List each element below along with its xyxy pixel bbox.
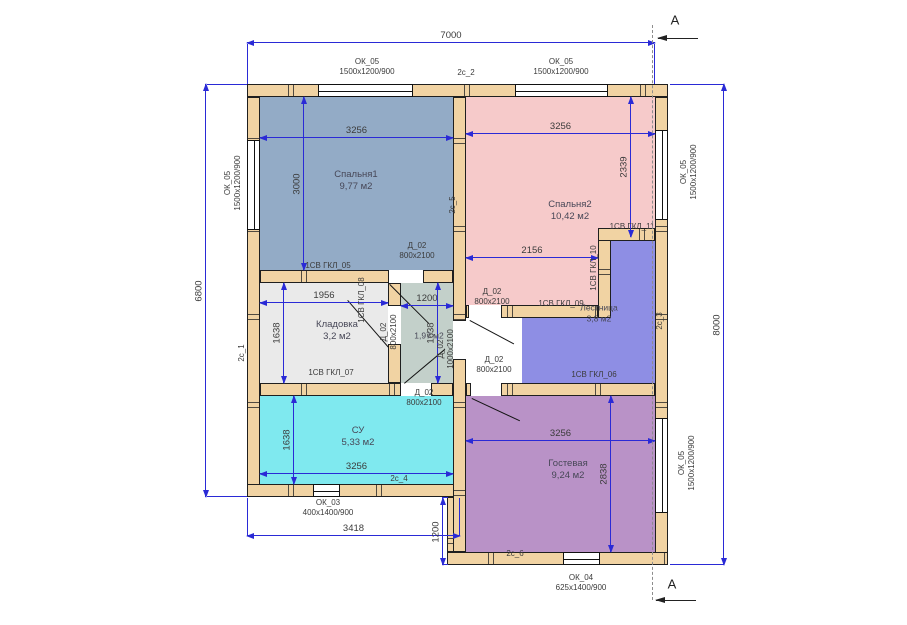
axis-tag-2c2: 2с_2 (457, 68, 474, 78)
dimension-living-width: 3256 (466, 440, 655, 441)
dimension-bottom-left: 3418 (247, 535, 460, 536)
door-label-storage: Д_02 800х2100 (379, 314, 399, 349)
dimension-bedroom2-width-lower: 2156 (466, 257, 598, 258)
dimension-left: 6800 (205, 84, 206, 497)
window-ok05-right-upper (655, 130, 668, 220)
window-ok05-top-left (318, 84, 413, 97)
dimension-bathroom-width: 3256 (260, 473, 453, 474)
wall-bottom-right (447, 552, 668, 565)
window-label-ok05-right-lower: ОК_05 1500х1200/900 (677, 435, 697, 490)
window-label-ok05-right-upper: ОК_05 1500х1200/900 (679, 144, 699, 199)
extension-line (207, 84, 247, 85)
section-arrow-top (658, 38, 698, 39)
dimension-bathroom-height: 1638 (293, 396, 294, 484)
wall-tag-09: 1СВ ГКЛ_09 (538, 299, 583, 309)
window-ok05-top-right (515, 84, 608, 97)
window-label-ok04: ОК_04 625х1400/900 (556, 573, 607, 593)
room-label-bedroom1: Спальня1 9,77 м2 (334, 169, 377, 193)
door-label-living: Д_02 800х2100 (476, 355, 511, 375)
wall-tag-10: 1СВ ГКЛ_10 (589, 245, 599, 290)
wall-tag-07: 1СВ ГКЛ_07 (308, 368, 353, 378)
door-label-hall-entry: Д_02 1000х2100 (436, 329, 456, 369)
wall-bottom-left (247, 484, 460, 497)
dimension-bedroom2-height: 2339 (630, 97, 631, 237)
wall-tag-08: 1СВ ГКЛ_08 (357, 277, 367, 322)
section-mark-top: А (671, 13, 680, 28)
room-label-bathroom: СУ 5,33 м2 (342, 425, 375, 449)
window-ok05-right-lower (655, 418, 668, 513)
room-label-living: Гостевая 9,24 м2 (548, 458, 587, 482)
door-label-bathroom: Д_02 800х2100 (406, 388, 441, 408)
dimension-right: 8000 (723, 84, 724, 565)
axis-tag-2c5: 2с_5 (448, 196, 458, 213)
window-ok03-bottom (313, 484, 340, 497)
room-label-storage: Кладовка 3,2 м2 (316, 319, 358, 343)
dimension-bedroom1-height: 3000 (303, 97, 304, 270)
axis-tag-2c3: 2с_3 (655, 312, 665, 329)
window-label-ok05-top-right: ОК_05 1500х1200/900 (533, 57, 588, 77)
door-label-bedroom2: Д_02 800х2100 (474, 287, 509, 307)
extension-line (247, 498, 248, 535)
section-cut-line (652, 25, 653, 600)
axis-tag-2c4: 2с_4 (390, 474, 407, 484)
section-mark-bottom: А (668, 577, 677, 592)
extension-line (670, 564, 723, 565)
extension-line (654, 44, 655, 84)
window-label-ok05-top-left: ОК_05 1500х1200/900 (339, 57, 394, 77)
section-arrow-bottom (656, 600, 696, 601)
window-ok04-bottom (563, 552, 600, 565)
dimension-bedroom1-width: 3256 (260, 137, 453, 138)
axis-tag-2c6: 2с_6 (506, 549, 523, 559)
dimension-bottom-step: 1200 (442, 498, 443, 565)
door-label-bedroom1: Д_02 800х2100 (399, 241, 434, 261)
room-label-stairs: Лестница 3,8 м2 (580, 302, 618, 323)
axis-tag-2c1: 2с_1 (237, 344, 247, 361)
extension-line (459, 498, 460, 535)
dimension-storage-width: 1956 (260, 302, 388, 303)
window-ok05-left (247, 140, 260, 230)
wall-tag-06: 1СВ ГКЛ_06 (571, 370, 616, 380)
extension-line (247, 44, 248, 84)
door-opening-living (470, 383, 502, 396)
dimension-storage-height: 1638 (283, 283, 284, 383)
floor-plan: HotWell.kz 7 (0, 0, 907, 625)
wall-tag-11: 1СВ ГКЛ_11 (610, 222, 655, 232)
window-label-ok05-left: ОК_05 1500х1200/900 (223, 155, 243, 210)
wall-tag-05: 1СВ ГКЛ_05 (305, 261, 350, 271)
room-label-bedroom2: Спальня2 10,42 м2 (548, 199, 591, 223)
extension-line (207, 496, 247, 497)
extension-line (670, 84, 723, 85)
dimension-hall-entry-width: 1200 (401, 305, 453, 306)
dimension-bedroom2-width: 3256 (466, 133, 655, 134)
window-label-ok03: ОК_03 400х1400/900 (303, 498, 354, 518)
dimension-living-height: 2838 (610, 396, 611, 552)
dimension-top: 7000 (247, 42, 655, 43)
door-opening-bedroom1 (388, 270, 424, 283)
